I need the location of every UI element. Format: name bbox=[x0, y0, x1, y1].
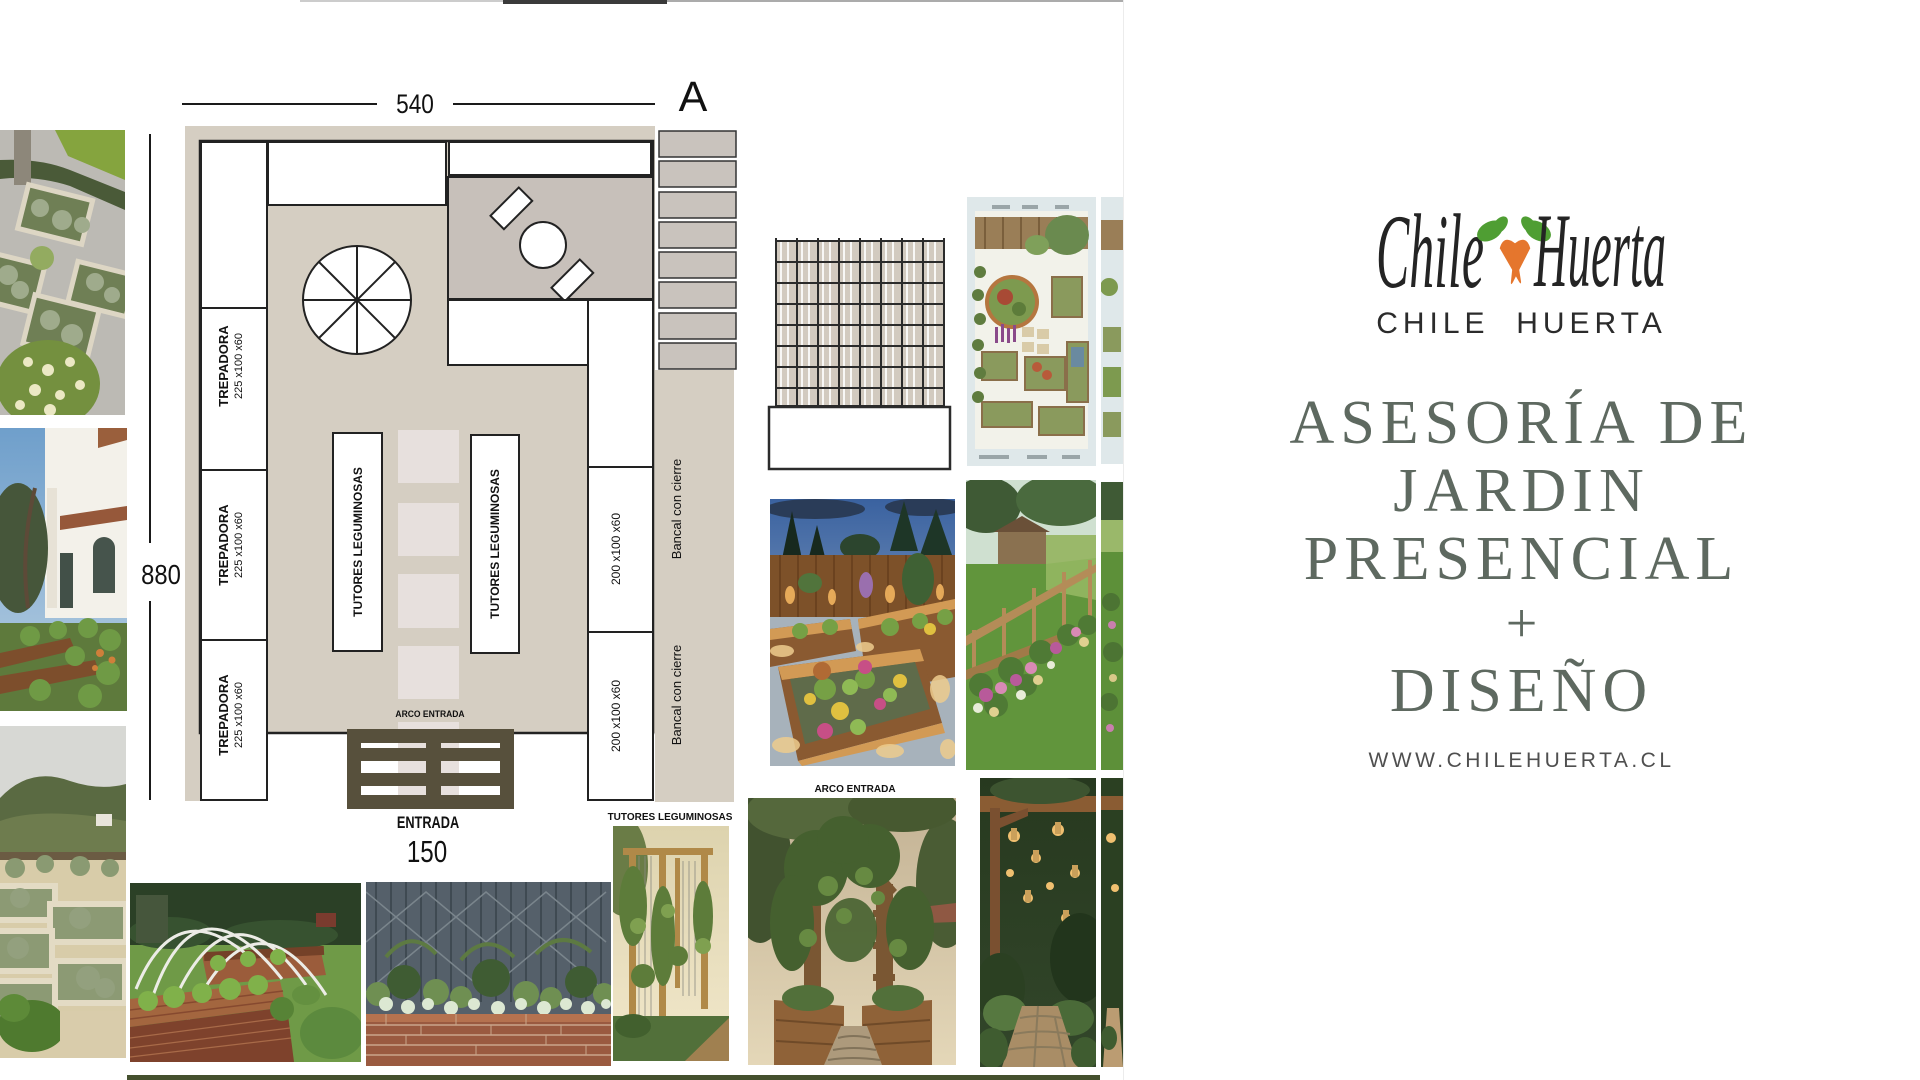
svg-text:A: A bbox=[679, 73, 708, 121]
svg-text:TUTORES LEGUMINOSAS: TUTORES LEGUMINOSAS bbox=[351, 467, 365, 617]
svg-text:150: 150 bbox=[407, 834, 447, 869]
svg-text:200 x100 x60: 200 x100 x60 bbox=[609, 513, 623, 585]
svg-text:TREPADORA: TREPADORA bbox=[216, 504, 231, 586]
svg-text:Bancal con cierre: Bancal con cierre bbox=[669, 459, 684, 559]
svg-text:Bancal con cierre: Bancal con cierre bbox=[669, 645, 684, 745]
svg-text:225 x100 x60: 225 x100 x60 bbox=[233, 333, 245, 399]
svg-text:225 x100 x60: 225 x100 x60 bbox=[233, 512, 245, 578]
svg-text:TUTORES LEGUMINOSAS: TUTORES LEGUMINOSAS bbox=[488, 469, 502, 619]
svg-text:200 x100 x60: 200 x100 x60 bbox=[609, 680, 623, 752]
svg-text:TREPADORA: TREPADORA bbox=[216, 674, 231, 756]
svg-text:TREPADORA: TREPADORA bbox=[216, 325, 231, 407]
svg-text:540: 540 bbox=[396, 89, 434, 119]
svg-text:ARCO ENTRADA: ARCO ENTRADA bbox=[395, 709, 465, 720]
svg-text:225 x100 x60: 225 x100 x60 bbox=[233, 682, 245, 748]
svg-text:880: 880 bbox=[141, 558, 181, 590]
svg-text:ENTRADA: ENTRADA bbox=[397, 813, 459, 832]
